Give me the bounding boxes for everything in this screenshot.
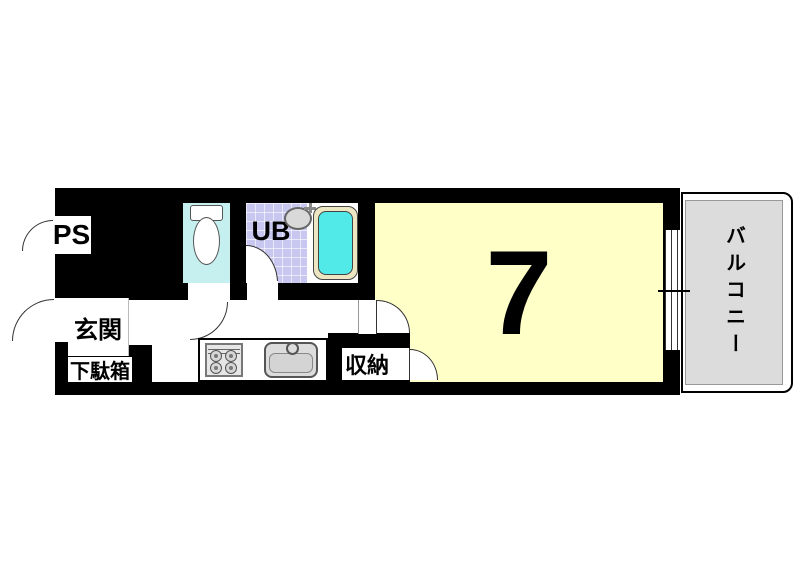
stove-burner-icon: [210, 350, 222, 362]
storage-closet: 収納: [342, 348, 392, 380]
entrance-label: 玄関: [74, 310, 122, 345]
balcony-label: バルコニー: [720, 225, 749, 360]
entrance-door-arc: [12, 299, 54, 341]
entrance-area: 玄関: [68, 298, 129, 356]
bathtub-icon: [313, 206, 358, 280]
toilet-room: [183, 203, 230, 283]
window-tick-mark: [658, 290, 690, 292]
balcony-floor: バルコニー: [685, 200, 783, 385]
sink-faucet-icon: [286, 342, 299, 355]
apartment-outline: UB 玄関 下駄箱 PS: [55, 188, 680, 395]
pipe-space-door-arc: [22, 220, 53, 251]
stove-burner-icon: [210, 362, 222, 374]
bath-doorway: [247, 281, 278, 302]
storage-door-leaf: [392, 348, 410, 380]
room-door-leaf: [358, 300, 377, 334]
floor-plan-canvas: UB 玄関 下駄箱 PS: [0, 0, 800, 583]
pipe-space: PS: [52, 216, 91, 254]
entrance-doorway: [53, 298, 68, 342]
washbasin-icon: [284, 207, 312, 230]
unit-bath-room: UB: [246, 203, 358, 283]
kitchen-counter: [198, 338, 328, 382]
kitchen-corridor: [152, 345, 200, 382]
stove-burner-icon: [225, 350, 237, 362]
pipe-space-label: PS: [53, 219, 90, 251]
bathtub-water: [318, 211, 353, 275]
stove-burner-icon: [225, 362, 237, 374]
sink-bowl: [269, 353, 313, 373]
shoe-cabinet: 下駄箱: [68, 357, 132, 382]
shoe-cabinet-label: 下駄箱: [70, 355, 130, 384]
toilet-bowl-icon: [193, 217, 220, 265]
room-size-label: 7: [486, 233, 553, 353]
stove-icon: [205, 343, 243, 377]
balcony: バルコニー: [681, 192, 793, 393]
kitchen-sink-icon: [264, 342, 318, 378]
storage-label: 収納: [345, 348, 389, 380]
